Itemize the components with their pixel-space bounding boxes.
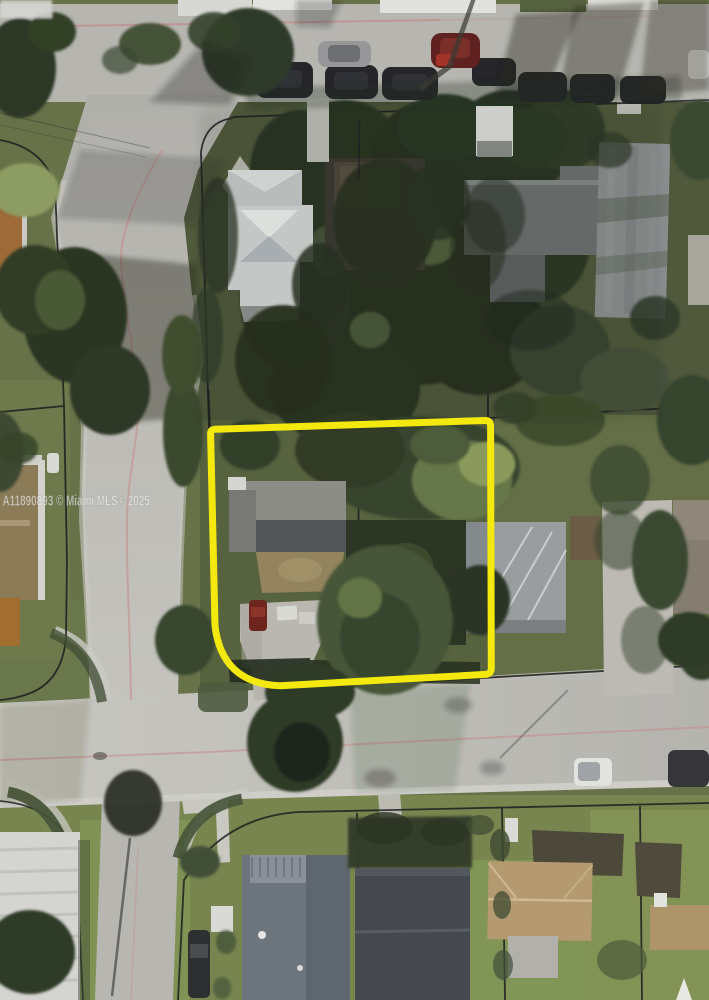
svg-text:A11890893 © Miami MLS© 2025: A11890893 © Miami MLS© 2025: [3, 493, 151, 509]
